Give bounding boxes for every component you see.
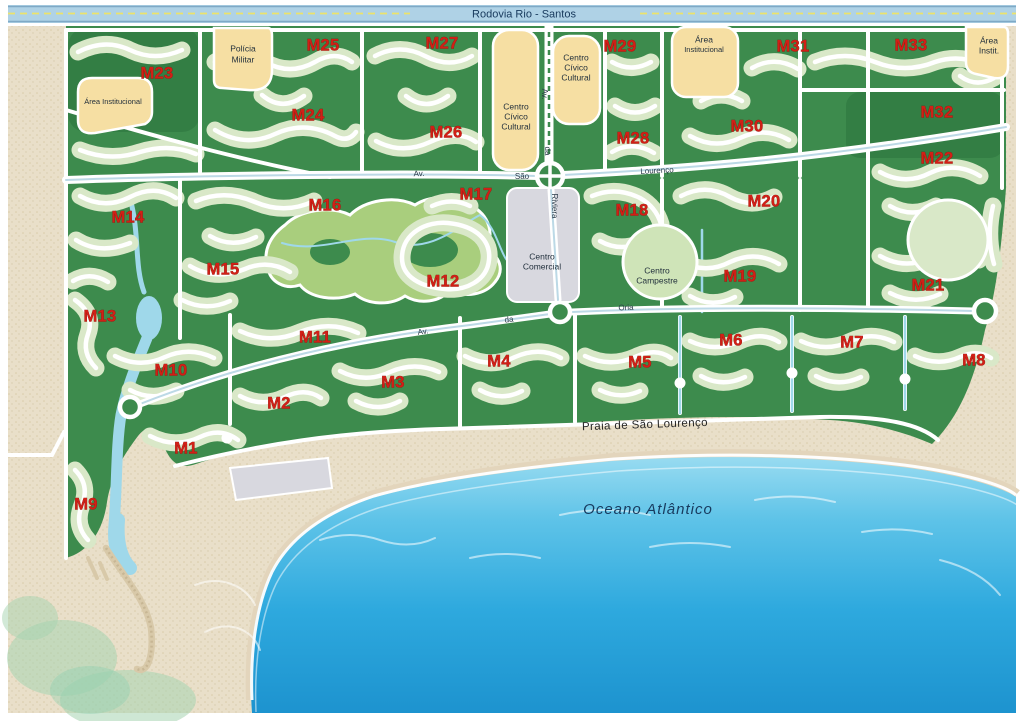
module-label-m9: M9 bbox=[74, 495, 98, 513]
oceano-label: Oceano Atlântico bbox=[583, 501, 713, 518]
centro-comercial-block bbox=[507, 188, 579, 302]
ccc-left-label-l1: Centro bbox=[503, 101, 529, 111]
ccc-right-label-l3: Cultural bbox=[561, 72, 590, 82]
module-label-m12: M12 bbox=[427, 272, 460, 290]
policia-militar-label-l2: Militar bbox=[232, 54, 255, 64]
module-label-m7: M7 bbox=[840, 333, 864, 351]
da-label-oria: da bbox=[504, 315, 514, 325]
module-label-m21: M21 bbox=[912, 276, 945, 294]
module-label-m18: M18 bbox=[616, 201, 649, 219]
av-label-riviera: Av. bbox=[540, 89, 549, 100]
area-institucional-left-label: Área Institucional bbox=[84, 97, 142, 106]
centro-campestre-label-l1: Centro bbox=[644, 265, 670, 275]
centro-civico-left-block bbox=[493, 30, 538, 170]
module-label-m24: M24 bbox=[292, 106, 326, 124]
da-label-riviera: da bbox=[543, 147, 552, 156]
centro-comercial-label-l2: Comercial bbox=[523, 261, 561, 271]
module-label-m17: M17 bbox=[460, 185, 493, 203]
av-label-sl: Av. bbox=[414, 169, 425, 178]
map-page: Rodovia Rio - Santos M1 M2 M3 M4 M5 M6 M… bbox=[0, 0, 1024, 721]
ccc-right-label-l1: Centro bbox=[563, 52, 589, 62]
module-label-m31: M31 bbox=[777, 37, 810, 55]
module-label-m27: M27 bbox=[426, 34, 459, 52]
centro-campestre-circle bbox=[623, 225, 697, 299]
module-label-m3: M3 bbox=[381, 373, 405, 391]
module-label-m13: M13 bbox=[84, 307, 117, 325]
module-label-m1: M1 bbox=[174, 439, 198, 457]
module-label-m25: M25 bbox=[307, 36, 340, 54]
module-label-m23: M23 bbox=[141, 64, 174, 82]
roundabout bbox=[974, 300, 996, 322]
policia-militar-label-l1: Polícia bbox=[230, 43, 256, 53]
module-label-m28: M28 bbox=[617, 129, 650, 147]
riviera-map: Rodovia Rio - Santos M1 M2 M3 M4 M5 M6 M… bbox=[0, 0, 1024, 721]
module-label-m15: M15 bbox=[207, 260, 240, 278]
area-instit-fr-label-l2: Instit. bbox=[979, 45, 999, 55]
centro-comercial-label-l1: Centro bbox=[529, 251, 555, 261]
module-label-m6: M6 bbox=[719, 331, 743, 349]
module-label-m4: M4 bbox=[487, 352, 511, 370]
area-inst-tr-label-l2: Institucional bbox=[684, 45, 724, 54]
module-label-m22: M22 bbox=[921, 149, 954, 167]
module-label-m32: M32 bbox=[921, 103, 954, 121]
centro-campestre-label-l2: Campestre bbox=[636, 275, 678, 285]
module-label-m10: M10 bbox=[155, 361, 188, 379]
ccc-left-label-l2: Cívico bbox=[504, 111, 528, 121]
shallow-green bbox=[50, 666, 130, 714]
module-label-m16: M16 bbox=[309, 196, 342, 214]
shallow-green bbox=[2, 596, 58, 640]
ccc-left-label-l3: Cultural bbox=[501, 121, 530, 131]
highway-bar: Rodovia Rio - Santos bbox=[8, 5, 1016, 23]
sao-label: São bbox=[515, 172, 530, 181]
module-label-m2: M2 bbox=[267, 394, 291, 412]
module-label-m5: M5 bbox=[628, 353, 652, 371]
module-label-m29: M29 bbox=[604, 37, 637, 55]
module-label-m30: M30 bbox=[731, 117, 764, 135]
module-label-m20: M20 bbox=[748, 192, 781, 210]
riviera-label: Riviera bbox=[550, 194, 559, 219]
lourenco-label: Lourenço bbox=[640, 165, 674, 176]
area-instit-fr-label-l1: Área bbox=[980, 35, 998, 45]
park-circle bbox=[908, 200, 988, 280]
roundabout bbox=[550, 302, 570, 322]
module-label-m19: M19 bbox=[724, 267, 757, 285]
ccc-right-label-l2: Cívico bbox=[564, 62, 588, 72]
av-label-oria: Av. bbox=[417, 326, 429, 337]
module-label-m26: M26 bbox=[430, 123, 463, 141]
oria-label: Oria bbox=[618, 303, 634, 313]
module-label-m33: M33 bbox=[895, 36, 928, 54]
module-label-m11: M11 bbox=[299, 328, 331, 346]
area-inst-tr-label-l1: Área bbox=[695, 34, 713, 44]
golf-interior bbox=[310, 239, 350, 265]
module-label-m14: M14 bbox=[112, 208, 146, 226]
highway-label: Rodovia Rio - Santos bbox=[472, 8, 576, 20]
roundabout bbox=[120, 397, 140, 417]
module-label-m8: M8 bbox=[962, 351, 986, 369]
